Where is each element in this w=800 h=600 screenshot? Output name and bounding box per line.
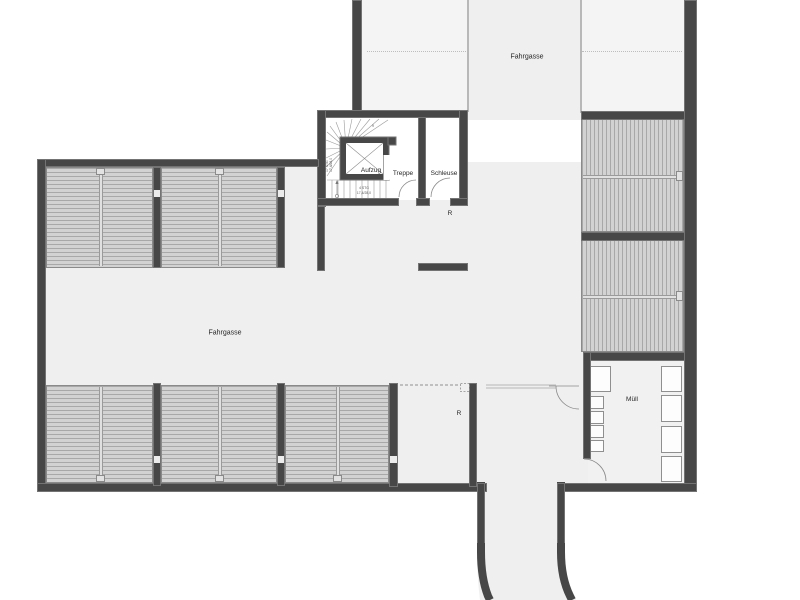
label-aufzug: Aufzug <box>361 168 381 175</box>
label-r-lower: R <box>457 411 462 418</box>
label-fahrgasse-top: Fahrgasse <box>510 54 543 61</box>
door-arc-muell-passage <box>556 386 579 409</box>
label-r-upper: R <box>448 211 453 218</box>
door-arc-treppe <box>399 180 416 197</box>
doors-overlay <box>0 0 800 600</box>
label-treppe: Treppe <box>393 171 413 178</box>
floor-plan-canvas: 9 17 STG 17,4/28,0 4 STG 17,4/28,0 Fahrg… <box>0 0 800 600</box>
door-arc-schleuse <box>431 178 450 197</box>
label-muell: Müll <box>626 397 638 404</box>
label-fahrgasse-main: Fahrgasse <box>208 330 241 337</box>
label-schleuse: Schleuse <box>431 171 458 178</box>
door-arc-muell-room <box>584 459 606 481</box>
dashed-marker-box <box>461 384 470 392</box>
